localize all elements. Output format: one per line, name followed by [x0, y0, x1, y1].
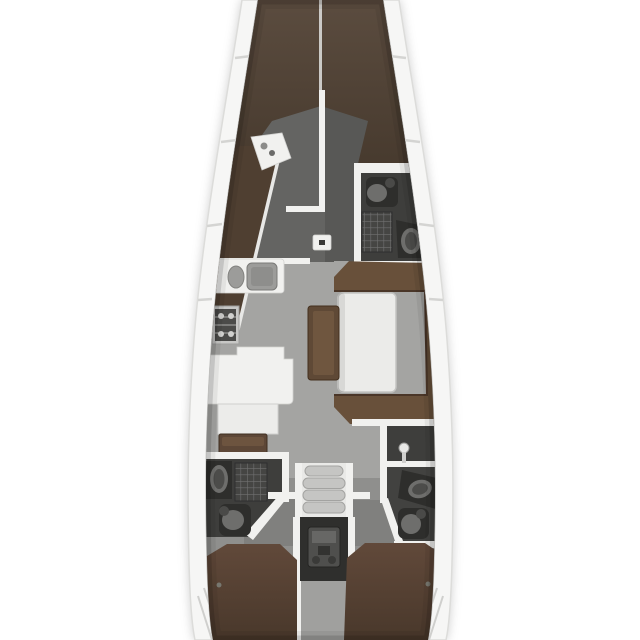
forward-partition-wall	[319, 90, 325, 212]
vanity-basin	[261, 143, 268, 150]
forward-cabin-aft-wall	[286, 206, 325, 212]
sink-oval	[228, 266, 244, 288]
deck-fitting-port	[217, 583, 222, 588]
toilet	[219, 504, 251, 536]
stair-rail-port	[295, 463, 302, 521]
toilet	[366, 177, 398, 207]
sink-rect-basin	[251, 267, 273, 286]
stair-wall-port	[268, 492, 298, 499]
toilet	[398, 508, 429, 539]
interior	[180, 0, 460, 640]
shower-grate	[362, 212, 392, 252]
yacht-floor-plan	[0, 0, 640, 640]
engine	[308, 527, 340, 567]
shower-grate	[235, 463, 267, 501]
stair-rail-starboard	[346, 463, 353, 521]
mast-post	[313, 235, 331, 250]
dining-table	[338, 293, 396, 392]
galley-locker	[218, 404, 278, 434]
engine-room	[293, 517, 355, 581]
vanity-faucet	[269, 150, 275, 156]
stair-treads	[303, 466, 345, 513]
center-bench	[308, 306, 339, 380]
floor-plan-svg	[0, 0, 640, 640]
forward-head-side-wall	[354, 163, 361, 269]
